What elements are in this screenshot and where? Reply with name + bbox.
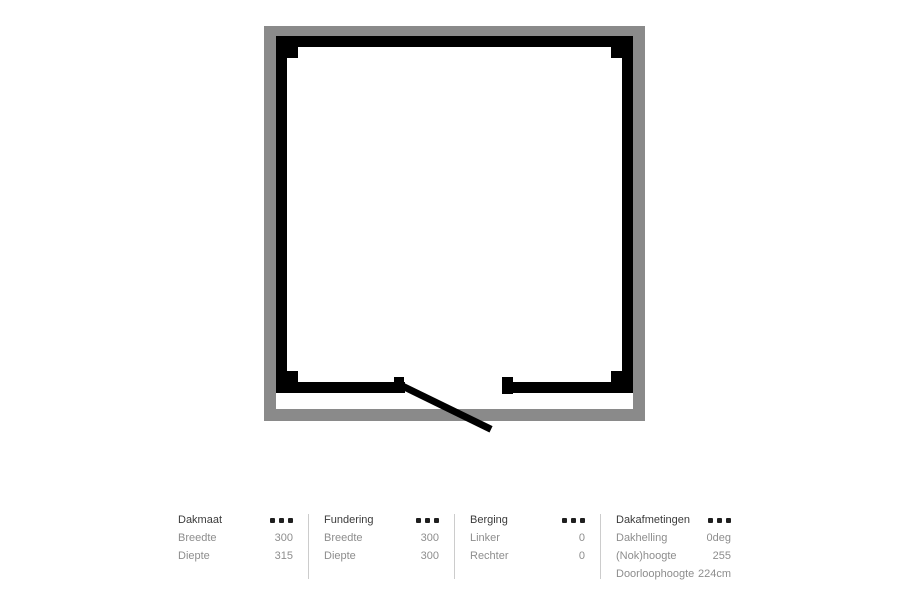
corner-post-top-right [611, 36, 633, 58]
floorplan-canvas [264, 26, 645, 421]
dimension-label: Breedte [178, 529, 217, 547]
dimension-value: 224cm [698, 565, 731, 583]
corner-post-bottom-left [276, 371, 298, 393]
panel-dakafmetingen: Dakafmetingen Dakhelling 0deg (Nok)hoogt… [616, 511, 731, 583]
dimension-value: 300 [421, 529, 439, 547]
dimension-row: Doorloophoogte 224cm [616, 565, 731, 583]
corner-post-bottom-right [611, 371, 633, 393]
dimension-value: 300 [275, 529, 293, 547]
panel-divider [308, 514, 309, 579]
panel-title: Dakafmetingen [616, 514, 690, 526]
dimension-label: Linker [470, 529, 500, 547]
panel-title: Berging [470, 514, 508, 526]
dimension-row: Breedte 300 [324, 529, 439, 547]
dimension-value: 0 [579, 547, 585, 565]
dimension-row: Dakhelling 0deg [616, 529, 731, 547]
berging-walls [276, 36, 633, 393]
dimension-row: Diepte 300 [324, 547, 439, 565]
dimension-row: (Nok)hoogte 255 [616, 547, 731, 565]
panel-header: Fundering [324, 511, 439, 529]
configurator-page: Dakmaat Breedte 300 Diepte 315 Fundering… [0, 0, 900, 600]
dimension-value: 315 [275, 547, 293, 565]
dimension-value: 300 [421, 547, 439, 565]
dimension-label: Diepte [178, 547, 210, 565]
dimension-label: Breedte [324, 529, 363, 547]
dimension-row: Rechter 0 [470, 547, 585, 565]
panel-divider [600, 514, 601, 579]
panel-header: Dakmaat [178, 511, 293, 529]
dimension-value: 0deg [707, 529, 731, 547]
panel-divider [454, 514, 455, 579]
panel-header: Dakafmetingen [616, 511, 731, 529]
dimension-label: Dakhelling [616, 529, 667, 547]
panel-fundering: Fundering Breedte 300 Diepte 300 [324, 511, 439, 565]
panel-title: Fundering [324, 514, 374, 526]
dimension-row: Linker 0 [470, 529, 585, 547]
door-strike-jamb [502, 377, 513, 394]
dimension-row: Diepte 315 [178, 547, 293, 565]
dimension-value: 0 [579, 529, 585, 547]
panel-header: Berging [470, 511, 585, 529]
dimensions-summary-bar: Dakmaat Breedte 300 Diepte 315 Fundering… [178, 511, 731, 583]
grip-squares-icon[interactable] [416, 518, 439, 523]
panel-dakmaat: Dakmaat Breedte 300 Diepte 315 [178, 511, 293, 565]
grip-squares-icon[interactable] [708, 518, 731, 523]
corner-post-top-left [276, 36, 298, 58]
panel-berging: Berging Linker 0 Rechter 0 [470, 511, 585, 565]
dimension-value: 255 [713, 547, 731, 565]
dimension-label: Diepte [324, 547, 356, 565]
dimension-label: Doorloophoogte [616, 565, 694, 583]
dimension-label: Rechter [470, 547, 509, 565]
grip-squares-icon[interactable] [270, 518, 293, 523]
dimension-label: (Nok)hoogte [616, 547, 677, 565]
panel-title: Dakmaat [178, 514, 222, 526]
grip-squares-icon[interactable] [562, 518, 585, 523]
dimension-row: Breedte 300 [178, 529, 293, 547]
